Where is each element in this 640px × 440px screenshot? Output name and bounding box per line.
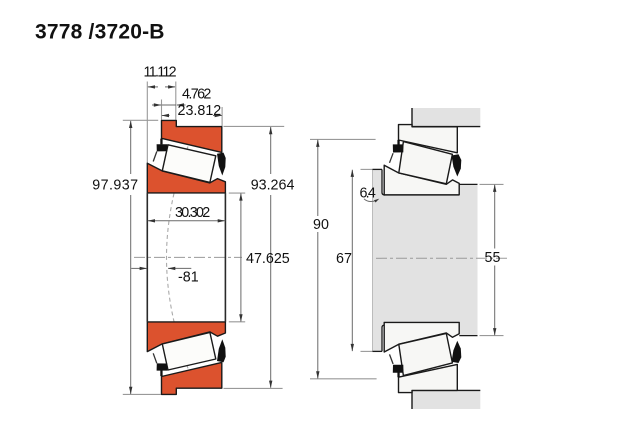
svg-text:93.264: 93.264 (251, 178, 295, 194)
svg-text:4.762: 4.762 (182, 87, 211, 103)
svg-text:3778 /3720-B: 3778 /3720-B (35, 21, 165, 44)
svg-text:90: 90 (313, 217, 329, 233)
svg-text:23.812: 23.812 (178, 103, 222, 119)
svg-text:55: 55 (485, 250, 501, 266)
svg-text:47.625: 47.625 (246, 251, 290, 267)
svg-text:11.112: 11.112 (144, 64, 177, 80)
svg-text:67: 67 (336, 251, 352, 267)
svg-text:-81: -81 (178, 270, 199, 286)
svg-text:6.4: 6.4 (360, 186, 376, 202)
svg-text:30.302: 30.302 (175, 205, 210, 221)
svg-text:97.937: 97.937 (92, 178, 138, 194)
